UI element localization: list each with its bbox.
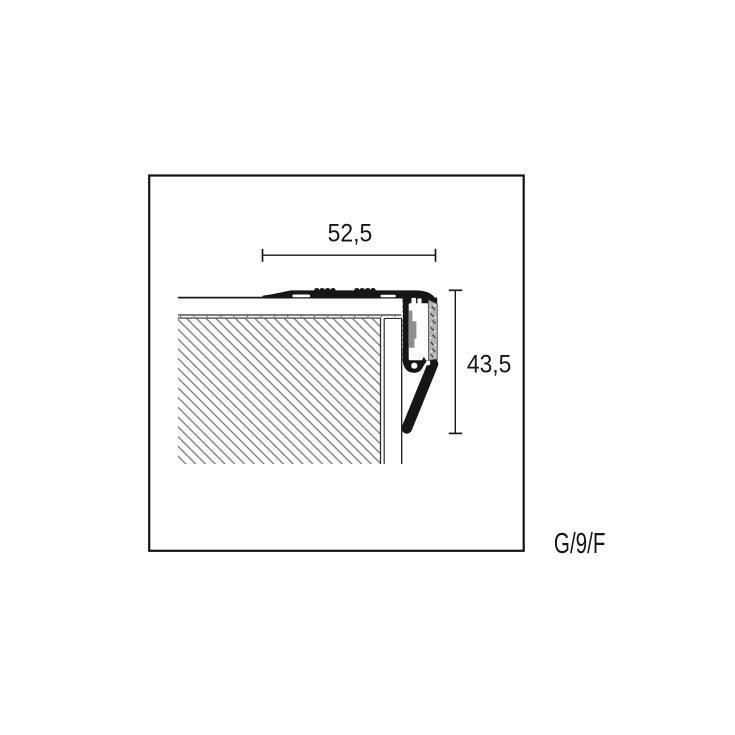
svg-text:G/9/F: G/9/F (554, 528, 606, 560)
svg-text:43,5: 43,5 (467, 351, 511, 379)
svg-text:52,5: 52,5 (328, 220, 373, 248)
